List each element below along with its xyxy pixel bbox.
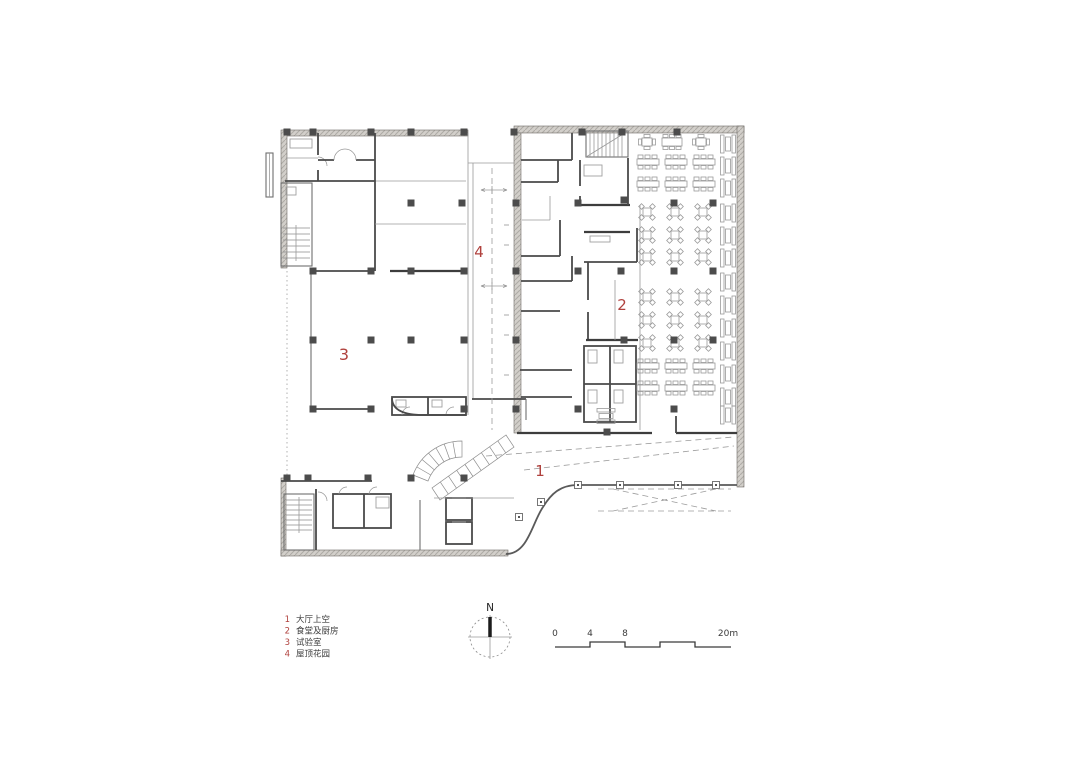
scale-tick-4: 4 (587, 629, 593, 639)
legend-label-3: 试验室 (296, 637, 322, 648)
bottom-left-block (281, 481, 472, 550)
legend-num-1: 1 (285, 615, 290, 625)
kitchen-toilets (584, 346, 636, 422)
legend-label-2: 食堂及厨房 (296, 626, 339, 637)
plan-marker-2: 2 (617, 296, 627, 314)
lower-toilets (333, 487, 391, 528)
legend-item: 4 屋顶花园 (285, 649, 330, 660)
scale-tick-20m: 20m (718, 629, 738, 639)
legend-label-1: 大厅上空 (296, 614, 330, 625)
curved-hall-wall (392, 398, 466, 415)
legend-item: 1 大厅上空 (285, 614, 330, 625)
legend-num-2: 2 (285, 627, 290, 637)
legend-num-4: 4 (285, 650, 290, 660)
terrace-skylight-dashed (598, 489, 731, 511)
canopy-dashed-lines (486, 437, 734, 470)
curved-stair (413, 441, 462, 481)
left-block (266, 133, 473, 478)
scale-tick-0: 0 (552, 629, 558, 639)
curved-glass-facade (506, 485, 737, 554)
north-arrow: N (468, 602, 512, 659)
dimension-marks (481, 186, 507, 290)
legend-label-4: 屋顶花园 (296, 649, 330, 660)
plan-marker-4: 4 (474, 243, 484, 261)
elevator-bank (446, 498, 472, 544)
legend-num-3: 3 (285, 638, 290, 648)
scale-bar: 0 4 8 20m (552, 629, 738, 647)
legend-item: 2 食堂及厨房 (285, 626, 339, 637)
scale-tick-8: 8 (622, 629, 628, 639)
roof-garden-strip (468, 163, 514, 430)
stair-lower-left (284, 494, 314, 550)
floor-plan-page: 1 2 3 4 1 大厅上空 2 食堂及厨房 3 试验室 4 屋顶花园 N (0, 0, 1080, 764)
plan-marker-1: 1 (535, 462, 545, 480)
floor-plan-drawing: 1 2 3 4 1 大厅上空 2 食堂及厨房 3 试验室 4 屋顶花园 N (0, 0, 1080, 764)
plan-marker-3: 3 (339, 345, 349, 364)
legend: 1 大厅上空 2 食堂及厨房 3 试验室 4 屋顶花园 (285, 614, 339, 660)
kitchen-zone (517, 131, 737, 433)
legend-item: 3 试验室 (285, 637, 322, 648)
north-label: N (486, 602, 494, 614)
dining-tables (597, 135, 736, 425)
